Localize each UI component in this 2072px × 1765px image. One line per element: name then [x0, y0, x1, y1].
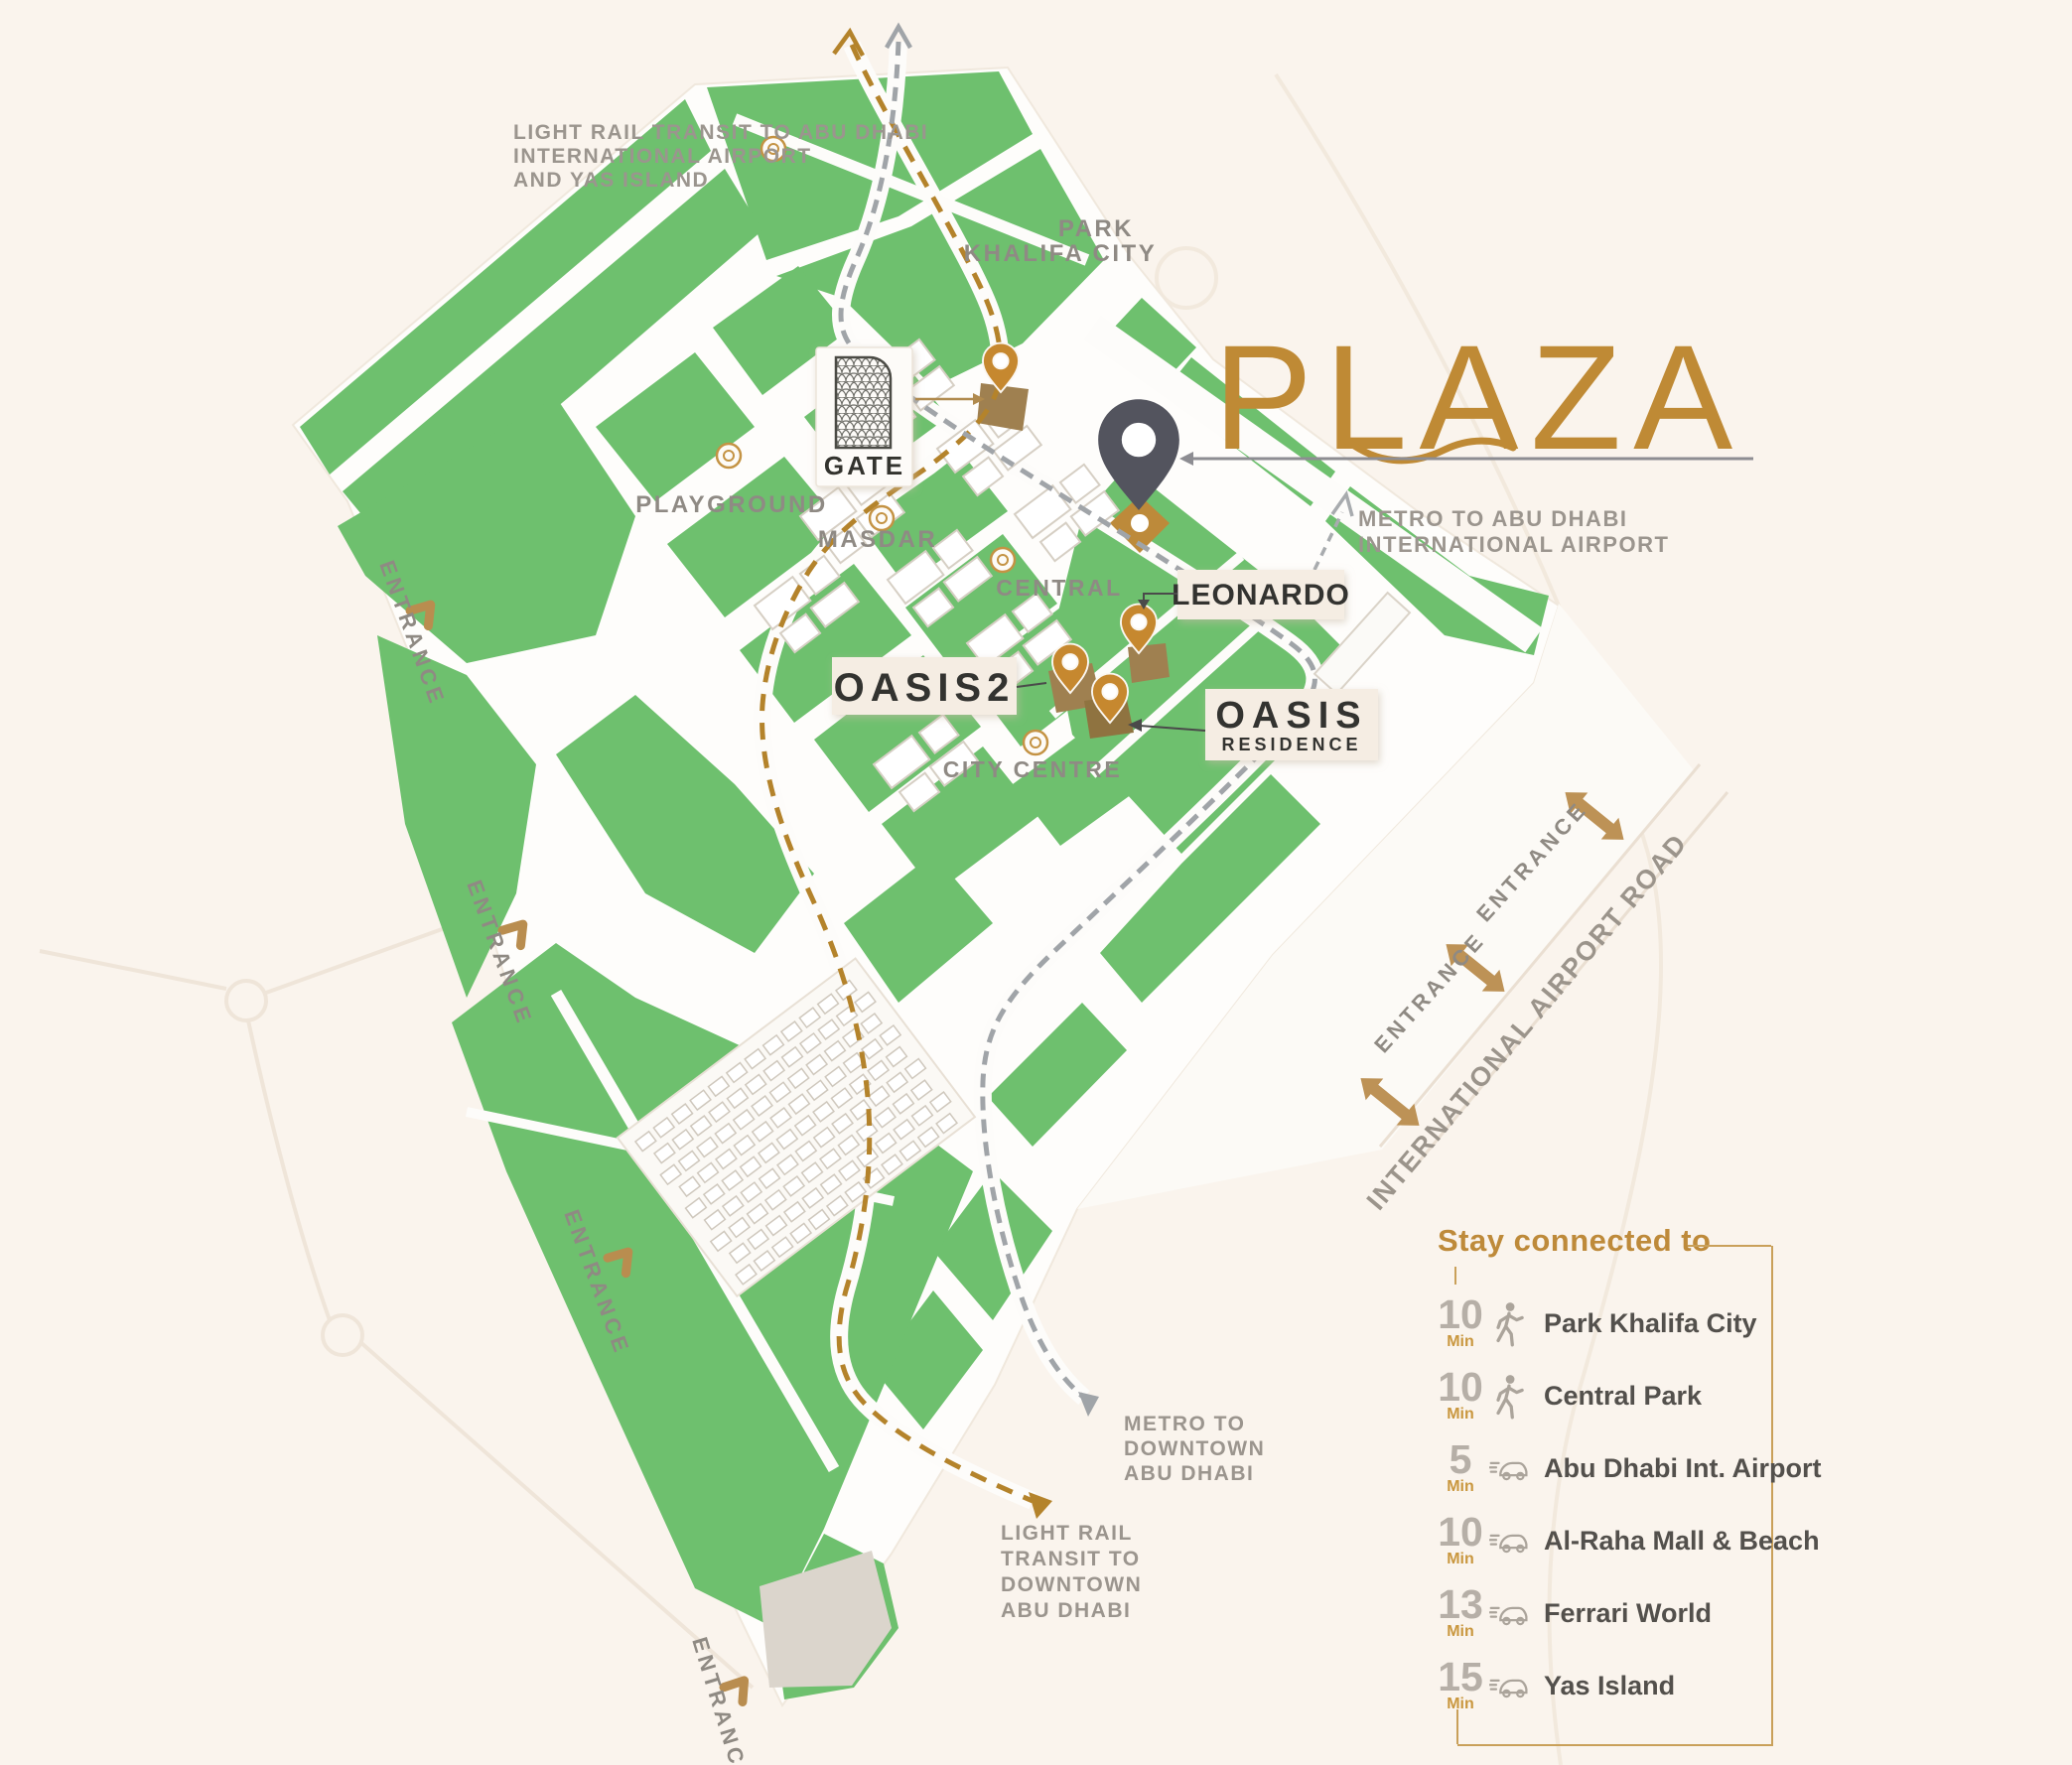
light-rail-south-arrow-icon — [1029, 1492, 1052, 1519]
walking-person-icon — [1489, 1374, 1529, 1420]
time-value: 10 — [1438, 1296, 1483, 1334]
panel-title-tick — [1454, 1267, 1456, 1285]
brochure-map-page: GATE PLAZA OASIS2 LEONARDO OASIS RESIDEN… — [0, 0, 2072, 1765]
plaza-title: PLAZA — [1213, 314, 1744, 480]
time-value: 13 — [1438, 1586, 1483, 1624]
svg-text:OASIS2: OASIS2 — [834, 666, 1016, 710]
list-item: 10 Min Central Park — [1438, 1360, 1775, 1432]
metro-south-arrow-icon — [1078, 1392, 1099, 1417]
playground-label: PLAYGROUND — [635, 491, 827, 518]
svg-text:AND YAS ISLAND: AND YAS ISLAND — [513, 169, 709, 192]
destination-label: Yas Island — [1544, 1671, 1675, 1701]
light-rail-downtown-note: LIGHT RAIL TRANSIT TO DOWNTOWN ABU DHABI — [1001, 1522, 1142, 1622]
car-icon — [1489, 1446, 1529, 1492]
svg-text:TRANSIT TO: TRANSIT TO — [1001, 1548, 1141, 1570]
svg-text:LEONARDO: LEONARDO — [1172, 579, 1350, 611]
svg-text:DOWNTOWN: DOWNTOWN — [1124, 1437, 1265, 1460]
gate-label: GATE — [824, 451, 905, 480]
list-item: 10 Min Park Khalifa City — [1438, 1288, 1775, 1360]
metro-airport-note: METRO TO ABU DHABI INTERNATIONAL AIRPORT — [1358, 506, 1669, 557]
svg-text:ABU DHABI: ABU DHABI — [1001, 1599, 1131, 1622]
svg-text:INTERNATIONAL AIRPORT: INTERNATIONAL AIRPORT — [1358, 532, 1669, 557]
time-unit: Min — [1438, 1478, 1483, 1496]
destination-label: Park Khalifa City — [1544, 1308, 1757, 1339]
svg-text:INTERNATIONAL AIRPORT: INTERNATIONAL AIRPORT — [513, 145, 812, 168]
list-item: 5 Min Abu Dhabi Int. Airport — [1438, 1432, 1775, 1505]
list-item: 10 Min Al-Raha Mall & Beach — [1438, 1505, 1775, 1577]
car-icon — [1489, 1519, 1529, 1564]
svg-text:OASIS: OASIS — [1215, 695, 1367, 737]
park-khalifa-label-2: KHALIFA CITY — [964, 240, 1157, 267]
svg-text:ABU DHABI: ABU DHABI — [1124, 1462, 1254, 1485]
oasis2-label: OASIS2 — [832, 657, 1046, 715]
park-khalifa-label-1: PARK — [1058, 215, 1134, 242]
gate-door-icon — [836, 357, 891, 448]
time-value: 15 — [1438, 1659, 1483, 1697]
destination-label: Ferrari World — [1544, 1598, 1712, 1629]
car-icon — [1489, 1664, 1529, 1709]
masdar-label: MASDAR — [818, 526, 937, 553]
time-value: 10 — [1438, 1514, 1483, 1552]
car-icon — [1489, 1591, 1529, 1637]
destination-label: Abu Dhabi Int. Airport — [1544, 1453, 1821, 1484]
time-value: 10 — [1438, 1369, 1483, 1407]
central-label: CENTRAL — [996, 575, 1122, 601]
time-value: 5 — [1438, 1441, 1483, 1479]
svg-text:METRO TO: METRO TO — [1124, 1413, 1245, 1435]
svg-text:LIGHT RAIL: LIGHT RAIL — [1001, 1522, 1133, 1545]
panel-frame-top — [1688, 1245, 1771, 1247]
list-item: 13 Min Ferrari World — [1438, 1577, 1775, 1650]
destination-label: Al-Raha Mall & Beach — [1544, 1526, 1820, 1557]
svg-text:DOWNTOWN: DOWNTOWN — [1001, 1573, 1142, 1596]
svg-text:METRO TO ABU DHABI: METRO TO ABU DHABI — [1358, 506, 1627, 531]
metro-downtown-note: METRO TO DOWNTOWN ABU DHABI — [1124, 1413, 1265, 1485]
destination-label: Central Park — [1544, 1381, 1702, 1412]
svg-text:RESIDENCE: RESIDENCE — [1221, 735, 1361, 754]
city-centre-label: CITY CENTRE — [943, 756, 1122, 782]
connected-list: 10 Min Park Khalifa City 10 Min Central … — [1438, 1288, 1775, 1722]
svg-text:LIGHT RAIL TRANSIT TO ABU DHAB: LIGHT RAIL TRANSIT TO ABU DHABI — [513, 121, 928, 144]
list-item: 15 Min Yas Island — [1438, 1650, 1775, 1722]
walking-person-icon — [1489, 1301, 1529, 1347]
